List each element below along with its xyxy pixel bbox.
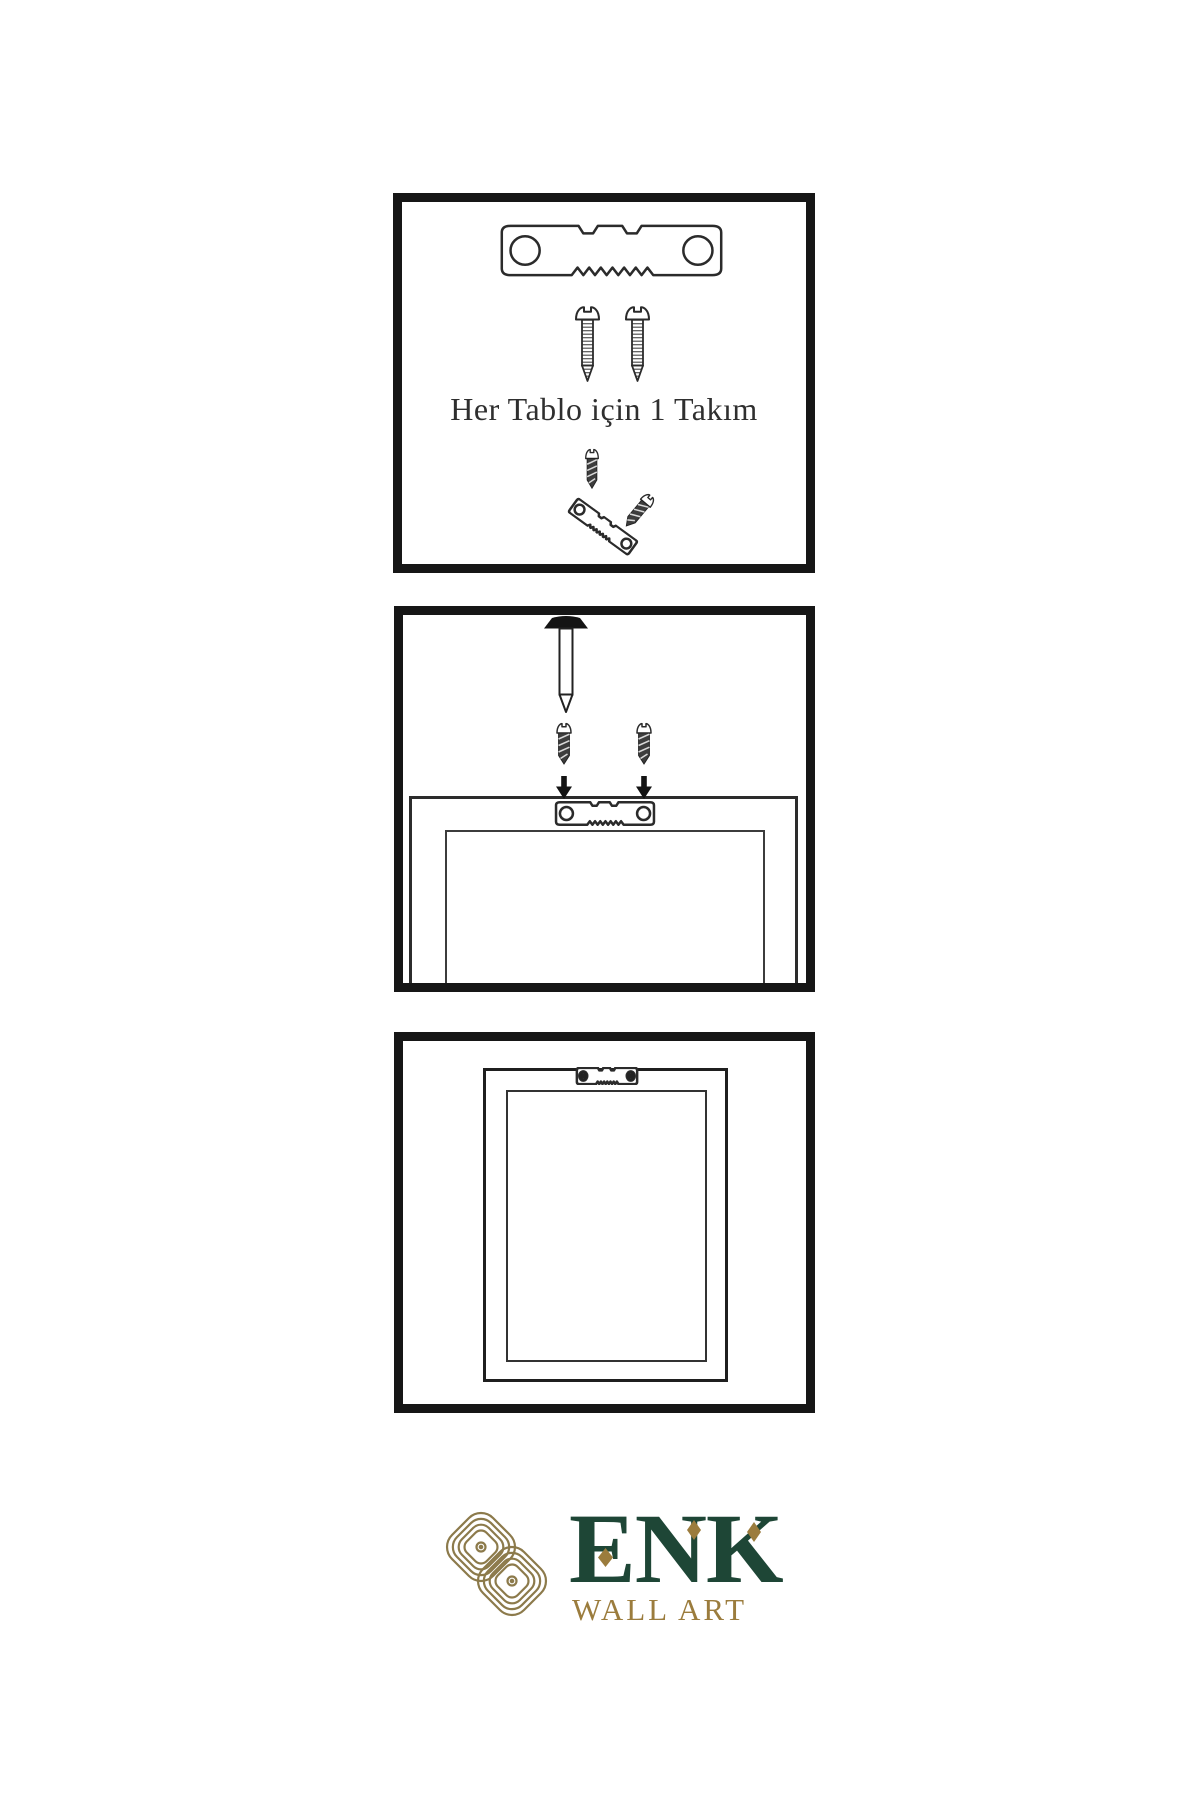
brand-name: ENK [569,1499,783,1599]
screw-icon [572,305,603,385]
step-2-mounting-panel [394,606,815,992]
step-3-hung-frame-panel [394,1032,815,1413]
sawtooth-hanger-icon [553,801,657,826]
nail-icon [543,615,589,715]
angled-hanger-group [571,448,685,566]
instruction-sheet: Her Tablo için 1 Takım ENK WALL ART [0,0,1200,1800]
brand-subtitle: WALL ART [572,1594,747,1625]
brand-logo: ENK WALL ART [435,1496,800,1636]
knot-logo-icon [435,1500,558,1628]
frame-back-inner [445,830,765,992]
screw-dark-icon [617,489,659,534]
step-1-kit-panel: Her Tablo için 1 Takım [393,193,815,573]
down-arrow-icon [636,776,652,799]
sawtooth-hanger-icon [495,223,728,278]
screw-icon [622,305,653,385]
kit-caption: Her Tablo için 1 Takım [402,391,806,428]
sawtooth-hanger-screwed-icon [575,1067,639,1085]
screw-dark-icon [583,448,601,492]
screw-dark-icon [634,722,654,768]
down-arrow-icon [556,776,572,799]
picture-frame-mat [506,1090,707,1362]
screw-dark-icon [554,722,574,768]
